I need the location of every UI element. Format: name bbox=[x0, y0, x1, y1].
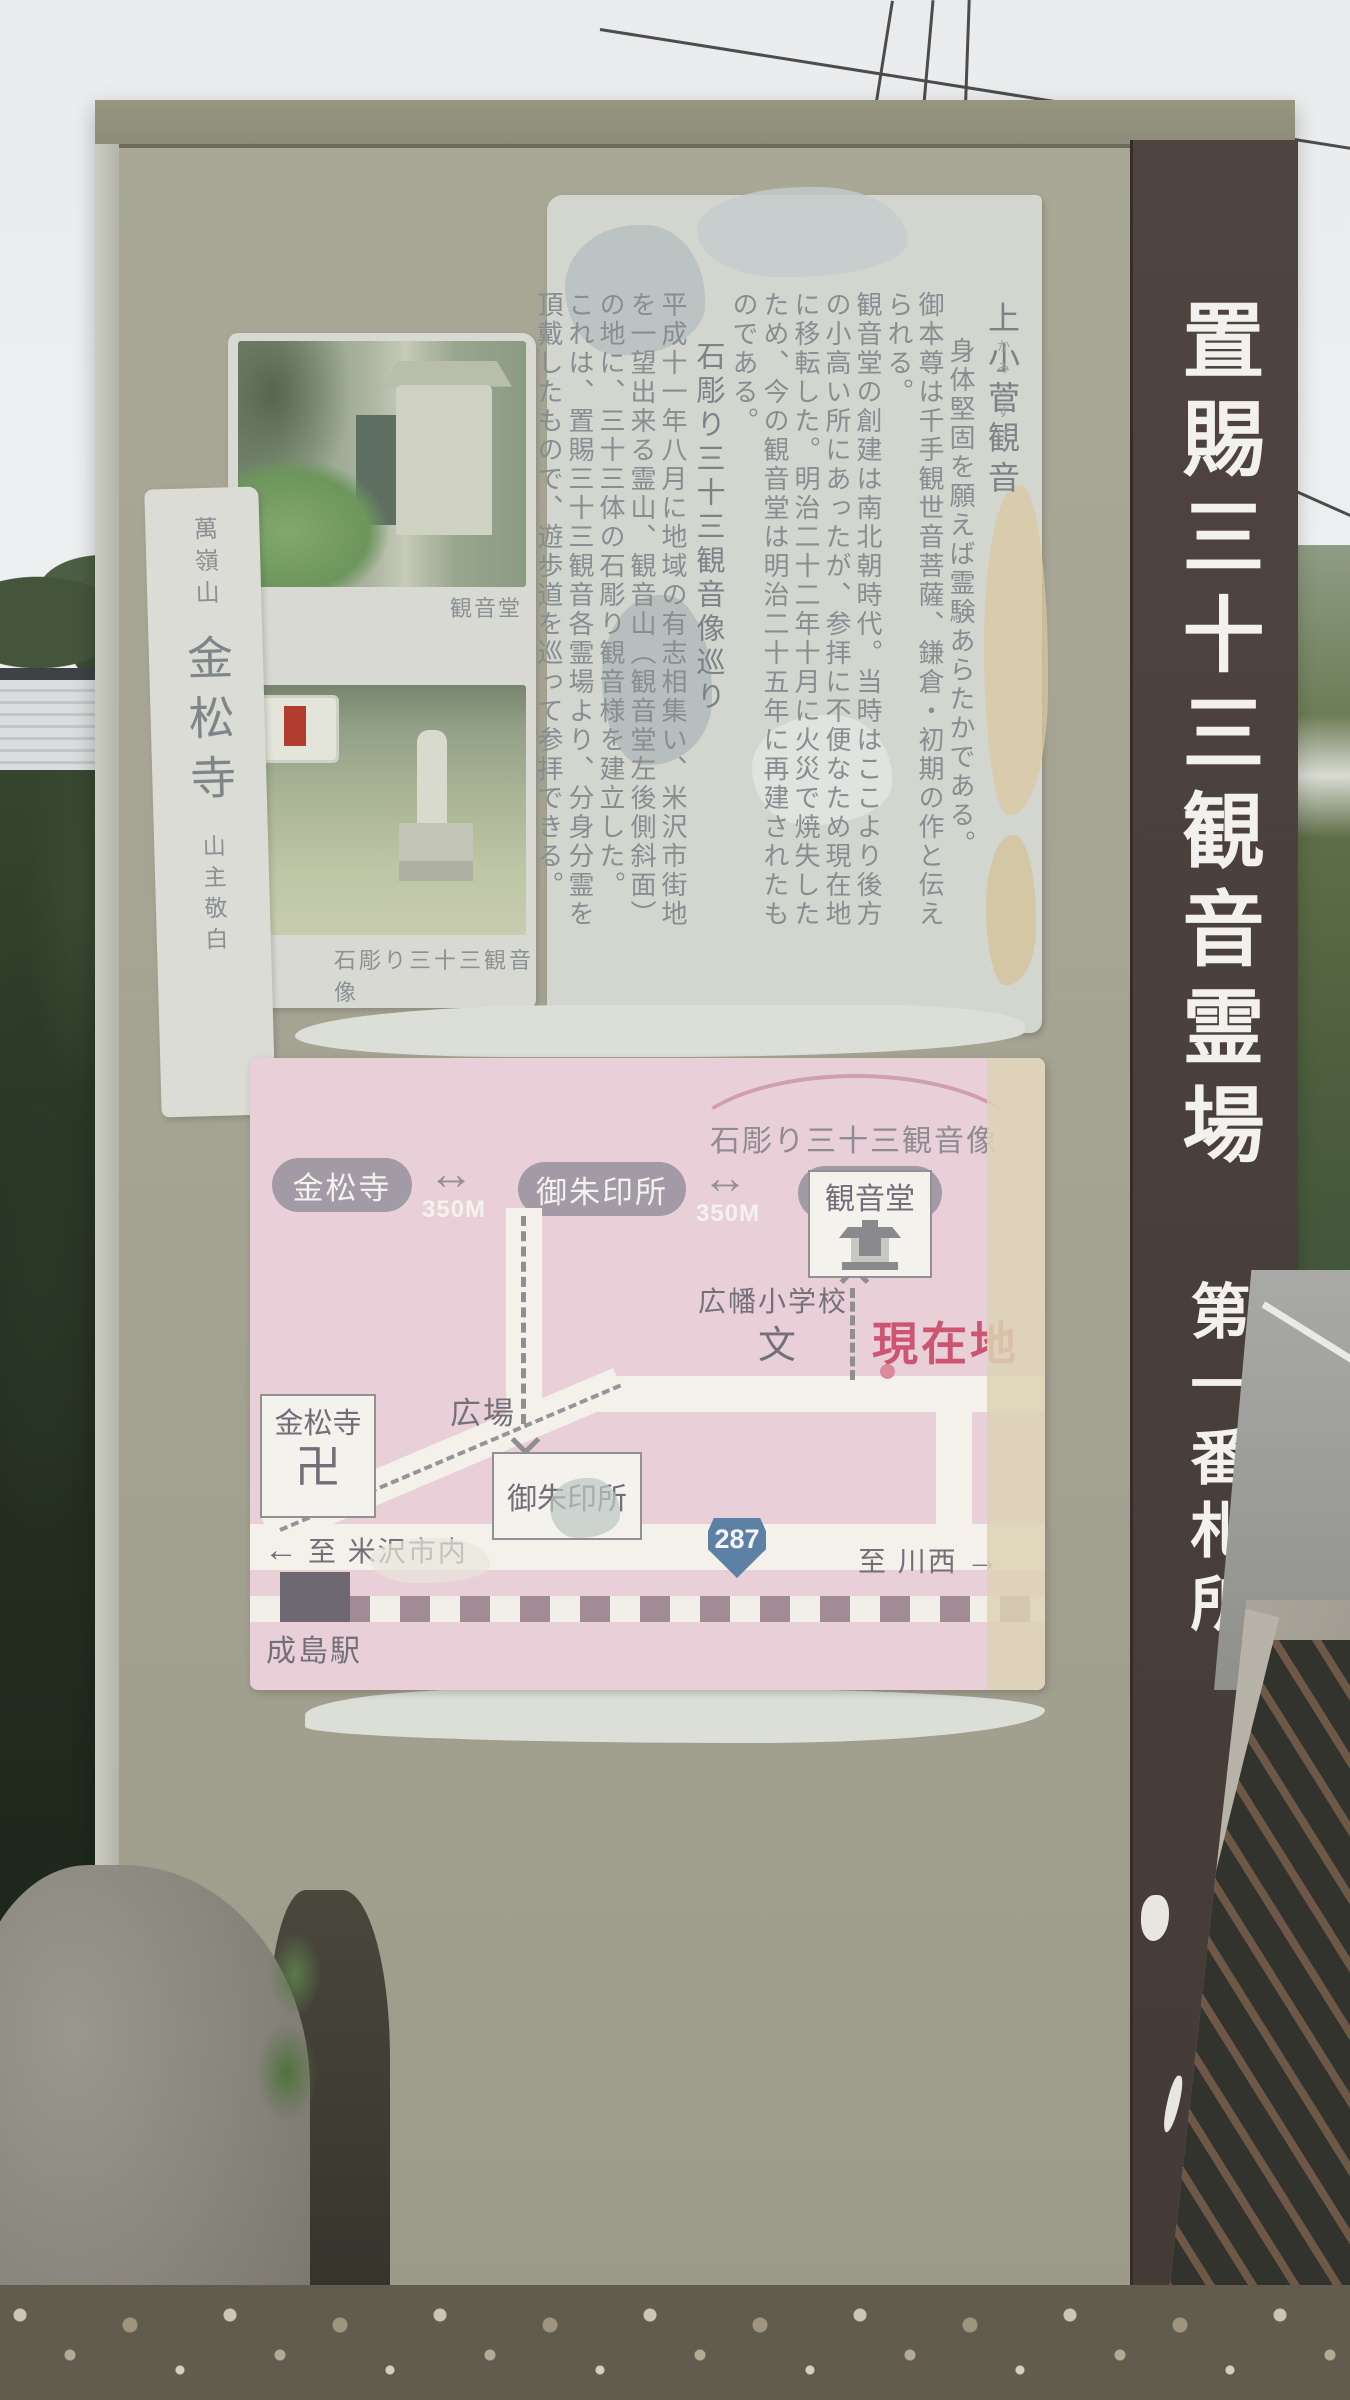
power-line bbox=[1293, 489, 1350, 524]
legend-stop-goshuin: 御朱印所 bbox=[518, 1162, 686, 1216]
railway-line bbox=[250, 1596, 1045, 1622]
mountain-name: 萬嶺山 bbox=[189, 516, 218, 613]
furigana: かみこすげ bbox=[976, 339, 1028, 449]
stone-kannon-photo bbox=[238, 685, 526, 935]
legend-distance: 350M bbox=[696, 1200, 760, 1228]
notice-paragraph: 観音堂の創建は南北朝時代。当時はここより後方の小高い所にあったが、参拝に不便なた… bbox=[728, 291, 883, 951]
photo-shrine-roof bbox=[382, 361, 512, 387]
left-arrow-icon: ← bbox=[264, 1531, 300, 1570]
paint-peel bbox=[1141, 1895, 1169, 1941]
notice-paragraph: 御本尊は千手観世音菩薩、鎌倉・初期の作と伝えられる。 bbox=[883, 291, 945, 951]
map-konshoji-label: 金松寺 bbox=[274, 1400, 361, 1442]
torn-paper bbox=[295, 1005, 1025, 1057]
access-map: 石彫り三十三観音像 金松寺 ↔ 350M 御朱印所 ↔ 350M 観音堂 観音堂 bbox=[250, 1058, 1045, 1690]
manji-icon: 卍 bbox=[295, 1442, 341, 1493]
photo-stone-statue bbox=[417, 730, 447, 826]
weeds bbox=[255, 1930, 335, 2150]
photo-caption-kannondo: 観音堂 bbox=[450, 591, 522, 623]
notice-paper: 上小菅観音 かみこすげ 身体堅固を願えば霊験あらたかである。 御本尊は千手観世音… bbox=[547, 195, 1042, 1033]
photo-caption-stone-kannon: 石彫り三十三観音像 bbox=[334, 943, 536, 1007]
signature-column: 萬嶺山 金松寺 山主敬白 bbox=[169, 515, 247, 959]
double-arrow-icon: ↔ bbox=[428, 1146, 474, 1200]
peel-patch bbox=[370, 1538, 490, 1583]
section-title: 石彫り三十三観音像巡り bbox=[688, 291, 728, 951]
map-kannondo-label: 観音堂 bbox=[825, 1174, 915, 1218]
peel-patch bbox=[550, 1478, 620, 1538]
photo-sheet: 観音堂 石彫り三十三観音像 bbox=[228, 333, 536, 1008]
outdoor-signboard-photo: 置賜三十三観音霊場 第一番札所 上小菅観音 かみこすげ 身体堅固を願えば霊験あら… bbox=[0, 0, 1350, 2400]
you-are-here-dot bbox=[880, 1364, 895, 1379]
photo-altar-door bbox=[284, 706, 306, 746]
photo-altar-inset bbox=[255, 695, 339, 763]
stain-patch bbox=[987, 1058, 1045, 1690]
to-kawanishi-text: 至 川西 bbox=[858, 1540, 958, 1580]
notice-paragraph: これは、置賜三十三観音各霊場より、分身分霊を頂戴したもので、遊歩道を巡って参拝で… bbox=[533, 291, 595, 951]
kannon-name-title: 上小菅観音 かみこすげ bbox=[976, 291, 1028, 951]
to-kawanishi-label: 至 川西 → bbox=[858, 1540, 1002, 1580]
photo-statue-pedestal bbox=[399, 823, 473, 881]
paint-peel bbox=[1161, 2074, 1185, 2133]
plaza-label: 広場 bbox=[450, 1388, 516, 1433]
station-label: 成島駅 bbox=[266, 1626, 362, 1670]
walking-route-dashed bbox=[521, 1216, 526, 1424]
signature-closing: 山主敬白 bbox=[198, 818, 227, 959]
map-konshoji-box: 金松寺 卍 bbox=[260, 1394, 376, 1518]
school-mark: 文 bbox=[758, 1314, 798, 1369]
map-road-middle bbox=[598, 1376, 1045, 1412]
notice-paragraph: 平成十一年八月に地域の有志相集い、米沢市街地を一望出来る霊山、観音山（観音堂左後… bbox=[595, 291, 688, 951]
signboard-top-cap bbox=[95, 100, 1295, 148]
signature-paper: 萬嶺山 金松寺 山主敬白 bbox=[144, 487, 275, 1118]
photo-shrine-hall bbox=[396, 385, 492, 535]
temple-building-icon bbox=[839, 1218, 901, 1270]
school-symbol: 文 bbox=[758, 1314, 798, 1369]
station-marker bbox=[280, 1572, 350, 1622]
notice-text-block: 上小菅観音 かみこすげ 身体堅固を願えば霊験あらたかである。 御本尊は千手観世音… bbox=[533, 291, 1028, 951]
map-kannondo-box: 観音堂 bbox=[808, 1170, 932, 1278]
map-road-right bbox=[936, 1408, 972, 1538]
pilgrimage-title: 置賜三十三観音霊場 bbox=[1156, 298, 1275, 1180]
gravel-ground bbox=[0, 2285, 1350, 2400]
legend-distance: 350M bbox=[422, 1196, 486, 1224]
temple-name: 金松寺 bbox=[180, 615, 237, 814]
notice-intro: 身体堅固を願えば霊験あらたかである。 bbox=[945, 291, 976, 951]
torn-paper bbox=[305, 1688, 1045, 1743]
station-name: 成島駅 bbox=[266, 1626, 362, 1670]
legend-stop-konshoji: 金松寺 bbox=[272, 1158, 412, 1212]
walking-route-dashed bbox=[850, 1288, 855, 1380]
photo-foliage bbox=[238, 457, 391, 587]
peel-patch bbox=[697, 187, 907, 277]
plaza-name: 広場 bbox=[450, 1388, 516, 1433]
kannondo-photo bbox=[238, 341, 526, 587]
double-arrow-icon: ↔ bbox=[702, 1150, 748, 1204]
